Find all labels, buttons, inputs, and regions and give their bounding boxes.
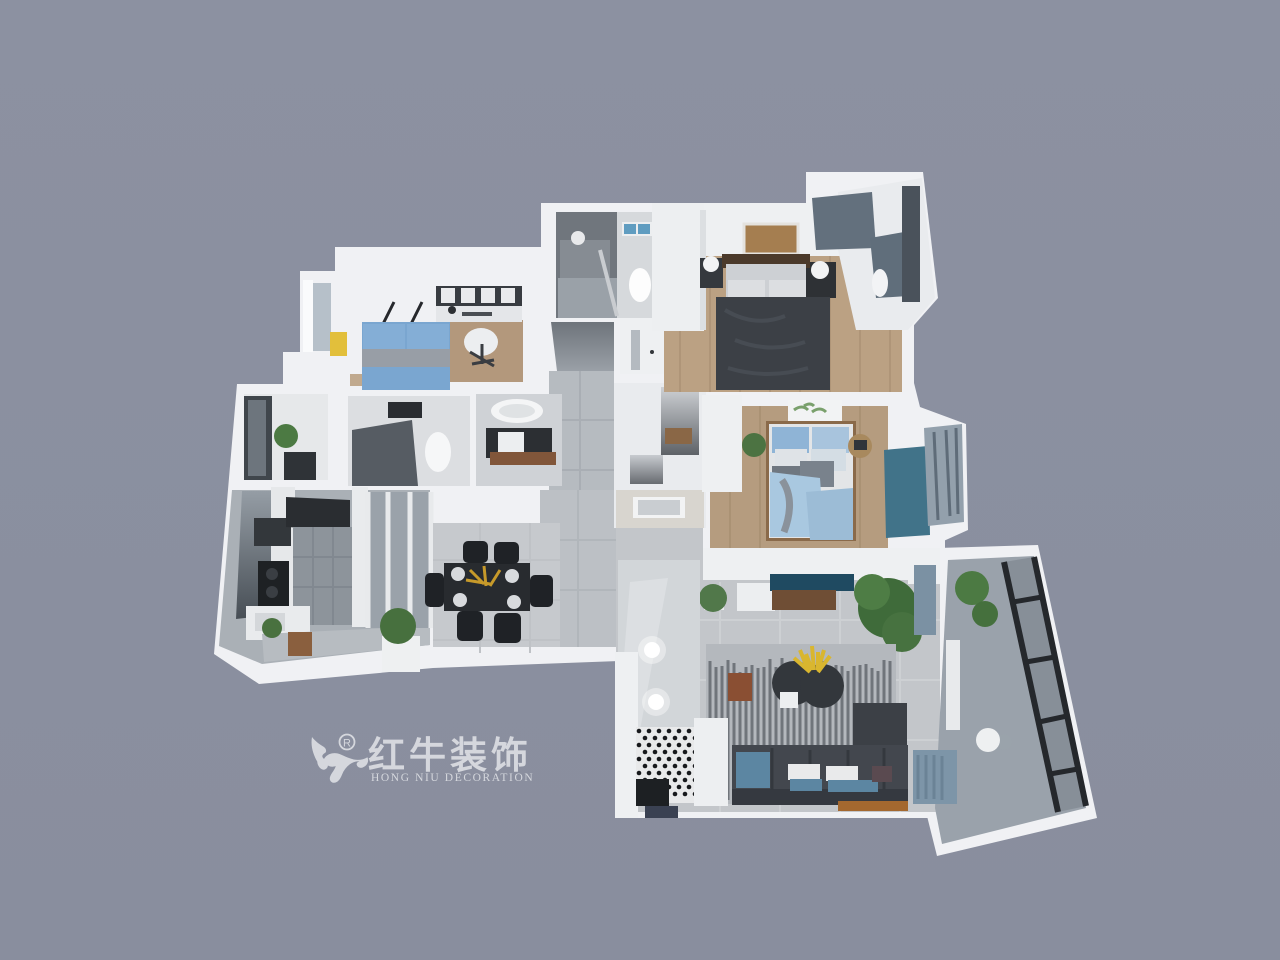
svg-text:HONG NIU DECORATION: HONG NIU DECORATION bbox=[371, 772, 534, 784]
svg-text:R: R bbox=[343, 738, 351, 750]
svg-text:红牛装饰: 红牛装饰 bbox=[368, 735, 532, 776]
